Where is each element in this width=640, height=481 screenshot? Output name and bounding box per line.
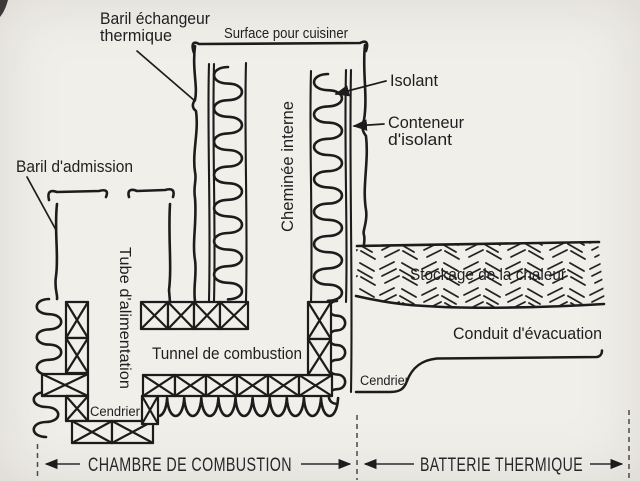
internal-chimney-right-wall <box>310 71 311 302</box>
intake-barrel-left-wall <box>55 204 57 299</box>
intake-barrel-right-wall <box>169 204 170 302</box>
leader-insulation <box>336 81 386 94</box>
leader-heat-exchanger-barrel <box>137 51 195 101</box>
scan-corner-mark <box>0 0 8 17</box>
left-insulation-container-outer-wall <box>208 64 209 301</box>
label-internal-chimney: Cheminée interne <box>278 101 297 232</box>
cooking-surface-line <box>193 42 368 53</box>
leader-insulation-container <box>354 124 384 126</box>
rocket-stove-diagram: Baril échangeur thermique Surface pour c… <box>0 0 640 481</box>
internal-chimney-left-wall <box>245 63 246 301</box>
label-insulation: Isolant <box>390 71 438 90</box>
intake-barrel-rim-right <box>128 189 173 197</box>
label-insulation-container-line2: d'isolant <box>388 130 452 149</box>
label-heat-storage: Stockage de la chaleur <box>410 265 566 284</box>
intake-side-insulation-coil-lower <box>34 392 58 437</box>
right-insulation-coil <box>314 74 342 301</box>
label-ash-pit-right: Cendrier <box>360 373 409 388</box>
label-feed-tube: Tube d'alimentation <box>116 247 133 389</box>
right-insulation-container-outer-wall-2 <box>350 70 351 392</box>
label-combustion-tunnel: Tunnel de combustion <box>152 344 302 363</box>
heat-exchanger-barrel-left-wall <box>193 46 197 301</box>
diagram-canvas: Baril échangeur thermique Surface pour c… <box>0 0 640 481</box>
zone-label-thermal-battery: BATTERIE THERMIQUE <box>420 455 583 476</box>
heat-exchanger-barrel-right-wall <box>363 45 367 245</box>
label-exhaust-duct: Conduit d'évacuation <box>453 324 602 343</box>
right-insulation-container-outer-wall <box>345 70 346 302</box>
leader-intake-barrel <box>27 177 56 230</box>
left-insulation-coil <box>214 67 242 299</box>
firebrick-blocks <box>42 302 332 443</box>
label-cooking-surface: Surface pour cuisiner <box>224 25 348 42</box>
zone-label-combustion-chamber: CHAMBRE DE COMBUSTION <box>88 455 292 476</box>
label-ash-pit-left: Cendrier <box>90 404 140 419</box>
tunnel-bottom-insulation-fringe <box>150 398 338 416</box>
intake-side-insulation-coil-upper <box>37 299 61 375</box>
label-intake-barrel: Baril d'admission <box>16 157 133 176</box>
left-insulation-container-outer-wall-2 <box>213 64 214 301</box>
intake-barrel-rim-left <box>48 190 107 200</box>
label-heat-exchanger-barrel-line2: thermique <box>100 26 172 45</box>
